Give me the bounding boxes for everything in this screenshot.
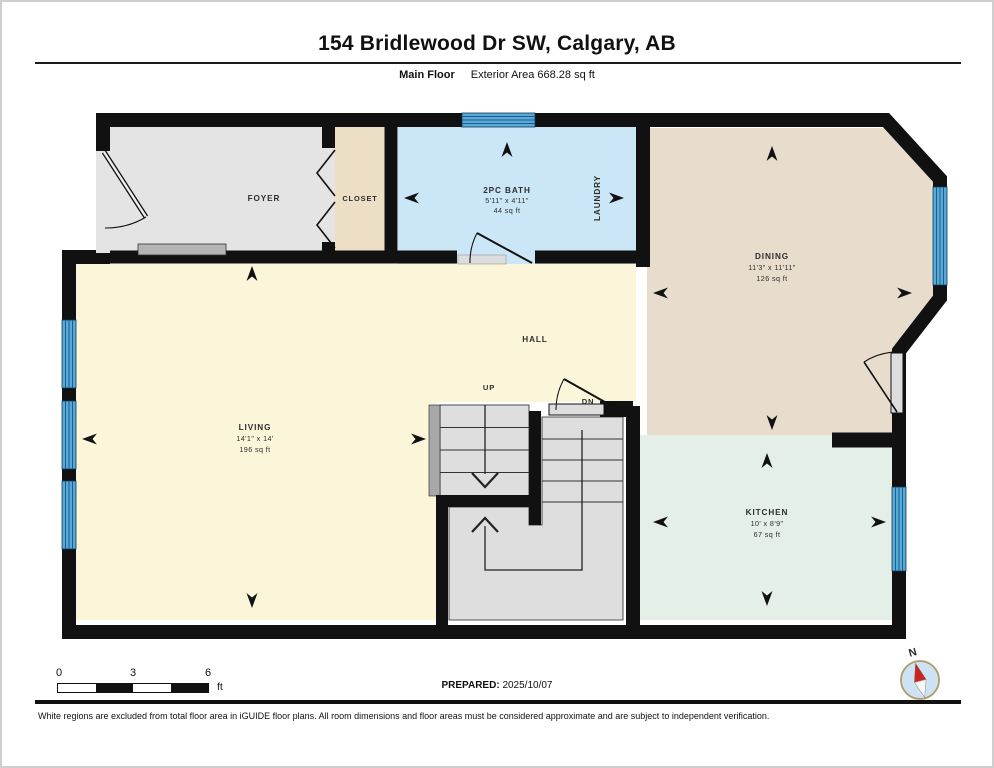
label-bath: 2PC BATH <box>483 186 531 195</box>
floorplan-page: 154 Bridlewood Dr SW, Calgary, AB Main F… <box>0 0 994 768</box>
compass-north-label: N <box>907 646 918 660</box>
label-kitchen-area: 67 sq ft <box>754 530 781 539</box>
scale-tick-3: 3 <box>130 667 136 679</box>
scale-tick-6: 6 <box>205 667 211 679</box>
wall-closet-stub-top <box>322 120 335 148</box>
scale-tick-0: 0 <box>56 667 62 679</box>
prepared-line: PREPARED: 2025/10/07 <box>2 680 992 691</box>
prepared-date: 2025/10/07 <box>502 680 552 691</box>
label-dining-dims: 11'3" x 11'11" <box>748 263 795 272</box>
label-bath-area: 44 sq ft <box>494 206 521 215</box>
stairs-railing <box>429 405 440 496</box>
label-living: LIVING <box>239 423 272 432</box>
room-closet <box>335 120 391 257</box>
label-bath-dims: 5'11" x 4'11" <box>485 196 529 205</box>
room-foyer <box>103 120 335 257</box>
label-stairs-up: UP <box>483 383 495 392</box>
label-living-dims: 14'1" x 14' <box>236 434 273 443</box>
label-stairs-down: DN <box>582 397 595 406</box>
label-kitchen-dims: 10' x 8'9" <box>751 519 784 528</box>
staircase <box>429 405 623 620</box>
window-dining-right <box>933 187 947 285</box>
label-laundry: LAUNDRY <box>593 175 602 221</box>
label-dining: DINING <box>755 252 789 261</box>
prepared-label: PREPARED: <box>442 680 500 691</box>
window-bath-top <box>462 113 535 127</box>
foyer-bench <box>138 244 226 255</box>
label-kitchen: KITCHEN <box>746 508 789 517</box>
window-kitchen-right <box>892 487 906 571</box>
label-living-area: 196 sq ft <box>239 445 270 454</box>
window-living-2 <box>62 401 76 469</box>
floorplan-drawing: FOYER CLOSET 2PC BATH 5'11" x 4'11" 44 s… <box>2 2 994 768</box>
label-foyer: FOYER <box>248 194 281 203</box>
label-dining-area: 126 sq ft <box>756 274 787 283</box>
disclaimer-text: White regions are excluded from total fl… <box>38 711 968 721</box>
window-living-3 <box>62 481 76 549</box>
label-closet: CLOSET <box>342 194 377 203</box>
label-hall: HALL <box>522 335 547 344</box>
compass: N <box>901 646 939 699</box>
footer-divider <box>35 700 961 704</box>
window-living-1 <box>62 320 76 388</box>
